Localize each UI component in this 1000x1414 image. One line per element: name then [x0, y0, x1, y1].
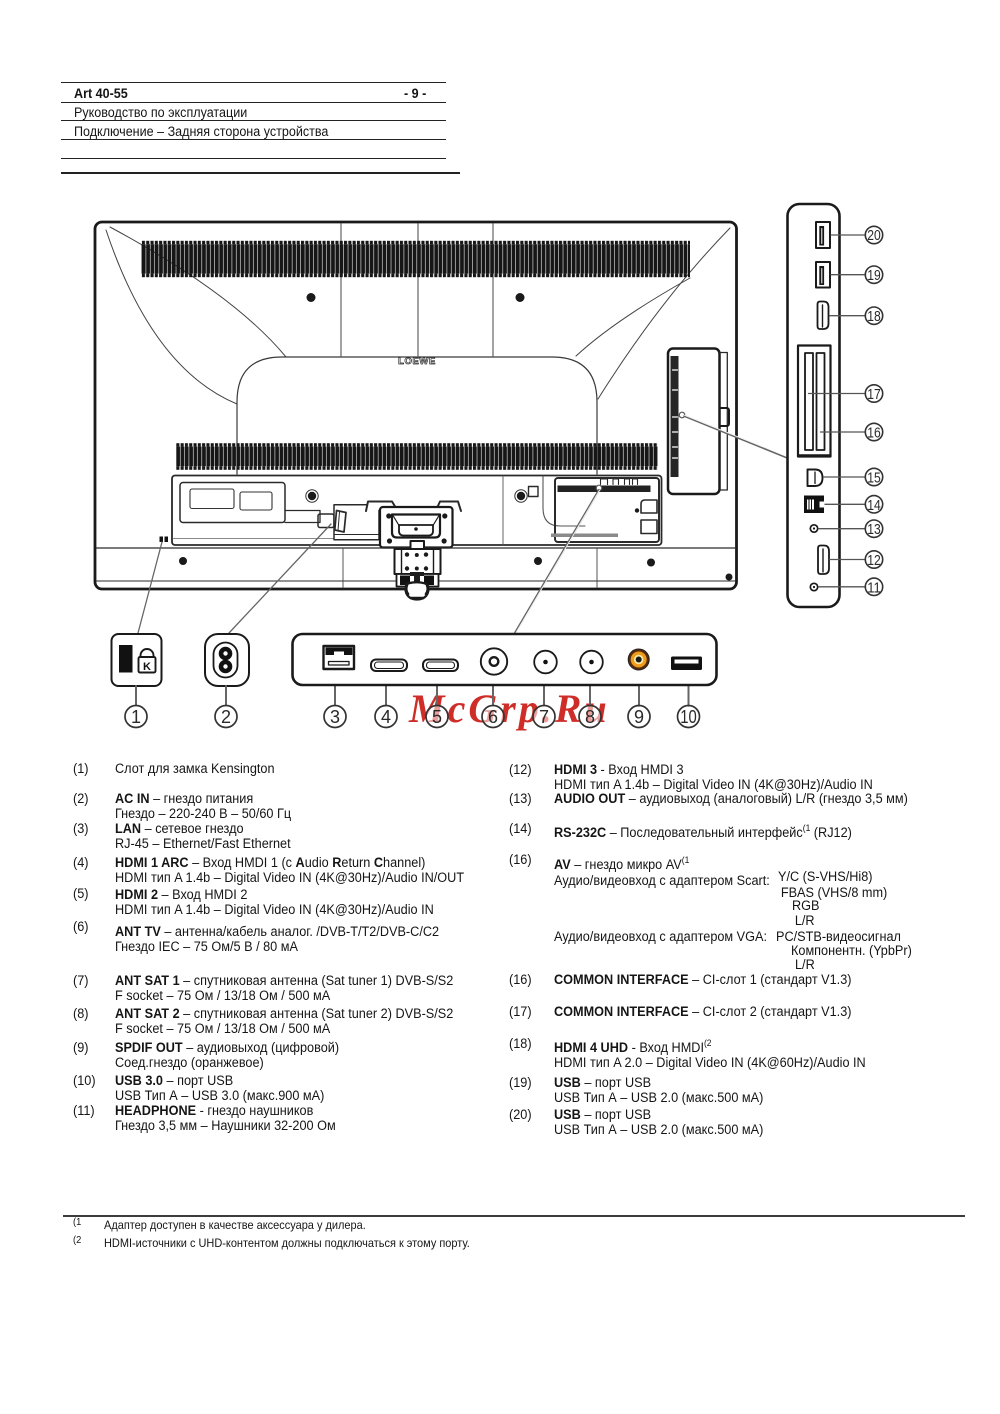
svg-text:18: 18: [867, 309, 881, 325]
svg-text:19: 19: [867, 268, 881, 284]
svg-text:6: 6: [488, 707, 498, 727]
svg-text:4: 4: [381, 707, 391, 727]
svg-text:3: 3: [330, 707, 340, 727]
svg-text:7: 7: [539, 707, 549, 727]
svg-text:15: 15: [867, 471, 881, 487]
svg-text:13: 13: [867, 522, 881, 538]
svg-text:5: 5: [432, 707, 442, 727]
svg-text:16: 16: [867, 426, 881, 442]
svg-text:K: K: [143, 661, 151, 673]
svg-text:LOEWE: LOEWE: [398, 356, 436, 367]
svg-text:1: 1: [131, 707, 141, 727]
svg-text:12: 12: [867, 553, 881, 569]
svg-text:11: 11: [867, 580, 881, 596]
svg-text:9: 9: [634, 707, 644, 727]
svg-text:8: 8: [585, 707, 595, 727]
svg-text:20: 20: [867, 228, 881, 244]
svg-text:17: 17: [867, 387, 881, 403]
svg-text:10: 10: [680, 707, 697, 727]
svg-text:14: 14: [867, 498, 881, 514]
svg-text:2: 2: [221, 707, 231, 727]
